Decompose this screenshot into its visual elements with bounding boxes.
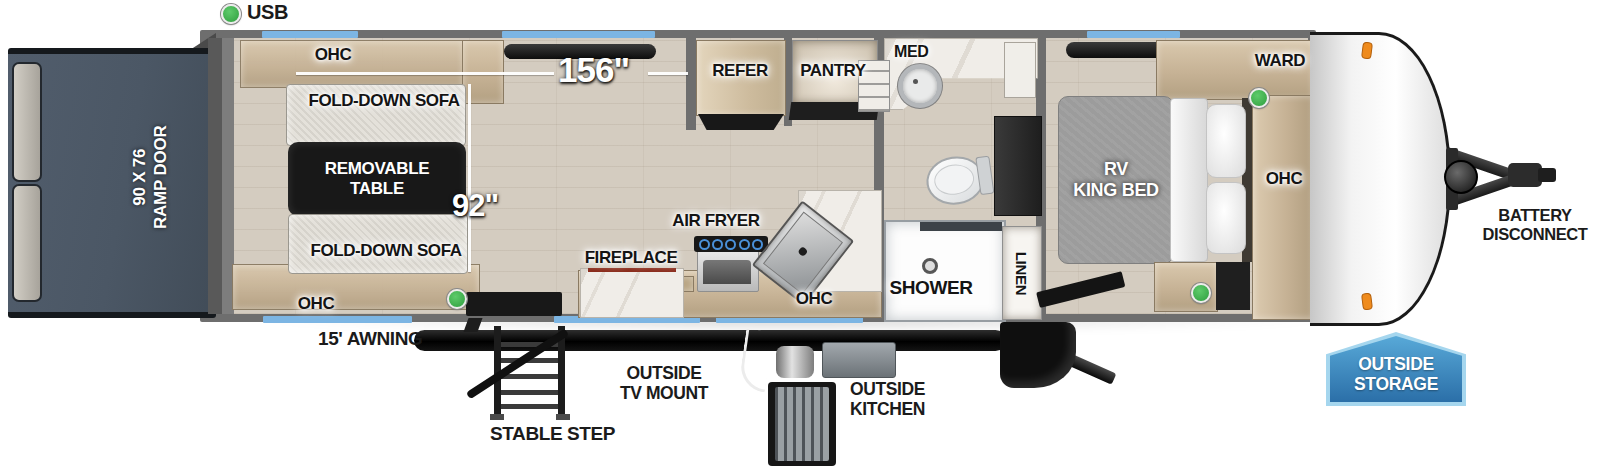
fireplace-label: FIREPLACE	[585, 249, 678, 267]
outside-storage-badge: OUTSIDE STORAGE	[1326, 332, 1466, 406]
window-top-2	[502, 31, 655, 38]
bed-label-1: RV	[1073, 159, 1159, 180]
step-foot	[490, 414, 504, 420]
garage-ohc-top-label: OHC	[315, 46, 352, 64]
battery-label-2: DISCONNECT	[1472, 225, 1598, 244]
shower-drain-icon	[922, 258, 938, 274]
kitchen-ohc-label: OHC	[796, 290, 833, 308]
usb-icon	[1191, 283, 1211, 303]
garage-opening-frame	[208, 38, 222, 314]
entry-steps-exterior	[1000, 322, 1076, 388]
outside-kitchen-fridge	[822, 342, 896, 378]
outside-storage-label-2: STORAGE	[1354, 375, 1438, 395]
outside-storage-label-1: OUTSIDE	[1358, 355, 1434, 375]
outside-kitchen-label-2: KITCHEN	[850, 400, 940, 420]
removable-table-label-1: REMOVABLE	[325, 159, 430, 179]
range-oven	[703, 260, 751, 284]
battery-label-1: BATTERY	[1472, 206, 1598, 225]
outside-kitchen-sink	[776, 346, 814, 378]
outside-kitchen-label: OUTSIDE KITCHEN	[850, 380, 940, 419]
bath-wall-pillar	[1004, 42, 1036, 98]
fold-down-sofa-top-label: FOLD-DOWN SOFA	[308, 92, 459, 110]
pillow	[1206, 104, 1246, 178]
step-rung	[501, 404, 558, 409]
window-bottom-1	[263, 316, 412, 323]
ward-label: WARD	[1255, 52, 1305, 70]
tv-mount-label-2: TV MOUNT	[614, 384, 714, 404]
fireplace-element	[588, 268, 676, 272]
bath-sink-icon	[898, 64, 942, 108]
refer-label: REFER	[712, 62, 768, 80]
bed-runner	[1170, 98, 1208, 262]
hitch-coupler-tip	[1538, 168, 1556, 182]
bed-label-2: KING BED	[1073, 180, 1159, 201]
battery-disconnect-label: BATTERY DISCONNECT	[1472, 206, 1598, 250]
step-rung	[501, 374, 558, 379]
width-measure-line	[468, 84, 471, 272]
hitch-coupler	[1508, 163, 1542, 187]
bedroom-dark-cabinet	[1216, 262, 1250, 310]
outside-kitchen-label-1: OUTSIDE	[850, 380, 940, 400]
awning-label: 15' AWNING	[318, 329, 422, 350]
ramp-window-top	[12, 62, 42, 182]
step-foot	[556, 414, 570, 420]
griddle-icon	[768, 382, 836, 466]
outside-tv-mount-label: OUTSIDE TV MOUNT	[614, 364, 714, 403]
bedroom-ohc-label: OHC	[1266, 170, 1303, 188]
burner-icon	[752, 239, 763, 250]
ramp-door-label: RAMP DOOR	[150, 125, 171, 229]
refrigerator-base	[698, 114, 784, 130]
tongue-jack-icon	[1444, 160, 1478, 194]
length-measure-line-right	[648, 72, 688, 75]
burner-icon	[739, 239, 750, 250]
usb-legend-label: USB	[247, 1, 288, 23]
floorplan-canvas: USB 90 X 76 RAMP DOOR OHC FOLD-DOWN SOFA…	[0, 0, 1600, 475]
pillow	[1206, 182, 1246, 254]
pantry-label: PANTRY	[800, 62, 866, 80]
ramp-door-label-box: 90 X 76 RAMP DOOR	[88, 82, 212, 272]
linen-closet: LINEN	[1002, 226, 1042, 320]
width-measurement: 92"	[452, 190, 498, 221]
burner-icon	[725, 239, 736, 250]
wardrobe-cabinet	[1156, 40, 1314, 100]
air-fryer-label: AIR FRYER	[672, 212, 759, 230]
front-cap	[1310, 32, 1451, 326]
step-rung	[501, 390, 558, 395]
tv-mount-label-1: OUTSIDE	[614, 364, 714, 384]
range-cooktop	[694, 236, 768, 252]
length-measure-line-left	[296, 72, 554, 75]
usb-icon	[221, 4, 241, 24]
shower-label: SHOWER	[889, 278, 972, 298]
shower	[884, 220, 1006, 322]
usb-icon	[1249, 88, 1269, 108]
fireplace-cabinet	[580, 268, 684, 318]
rv-king-bed: RV KING BED	[1058, 96, 1174, 264]
bedroom-ohc-cabinet	[1252, 95, 1314, 320]
window-top-3	[1087, 31, 1180, 38]
burner-icon	[712, 239, 723, 250]
ramp-window-bottom	[12, 184, 42, 302]
garage-ohc-top-cabinet	[240, 40, 464, 88]
length-measurement: 156"	[558, 52, 629, 87]
toilet-icon	[923, 150, 995, 207]
removable-table: REMOVABLE TABLE	[288, 142, 466, 216]
garage-ohc-bottom-label: OHC	[298, 295, 335, 313]
linen-label: LINEN	[1015, 251, 1030, 295]
burner-icon	[699, 239, 710, 250]
ramp-door: 90 X 76 RAMP DOOR	[8, 48, 216, 318]
ramp-door-size: 90 X 76	[129, 125, 150, 229]
bath-wardrobe	[994, 116, 1042, 216]
usb-icon	[447, 289, 467, 309]
removable-table-label-2: TABLE	[325, 179, 430, 199]
fold-down-sofa-bottom-label: FOLD-DOWN SOFA	[310, 242, 461, 260]
wall-refer-left	[686, 38, 696, 130]
stable-step-label: STABLE STEP	[490, 424, 615, 445]
entry-landing	[466, 292, 562, 316]
med-cabinet-label: MED	[894, 44, 928, 61]
window-top-1	[262, 31, 358, 38]
awning-roller	[414, 330, 1006, 351]
clearance-light-icon	[1361, 292, 1373, 310]
